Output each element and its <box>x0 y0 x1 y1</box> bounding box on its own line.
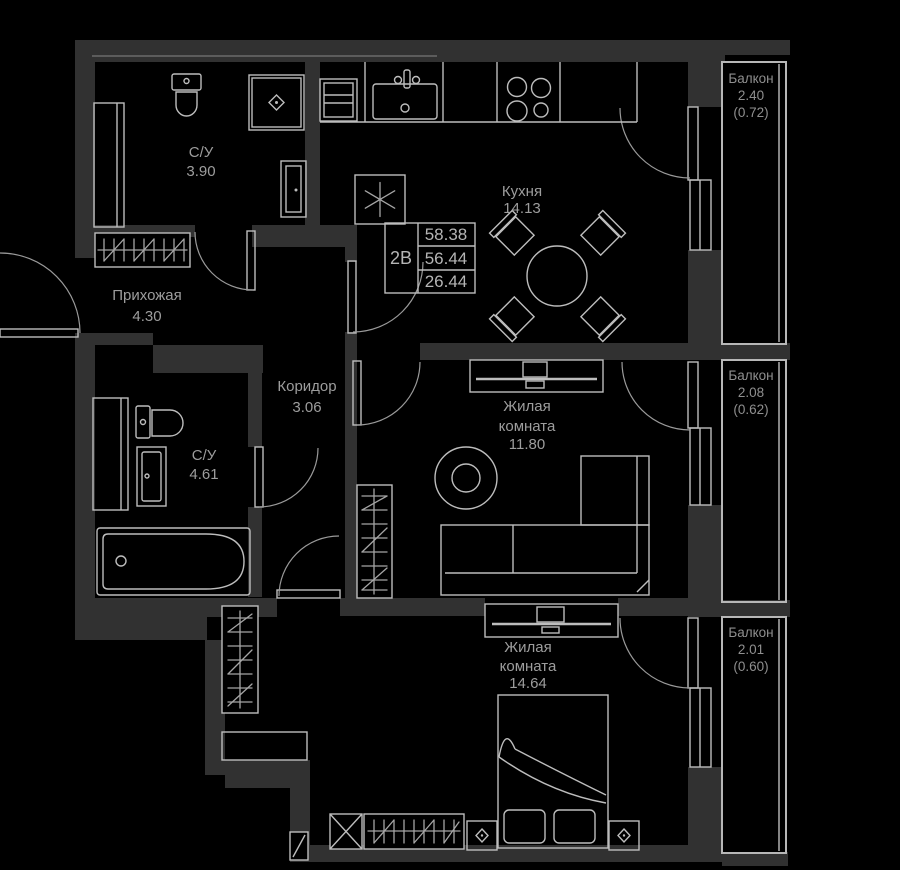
area-without-balconies-value: 56.44 <box>425 249 468 268</box>
room-area: 4.61 <box>189 466 218 483</box>
pillow-icon <box>504 810 545 843</box>
wall <box>153 345 263 373</box>
wall <box>688 250 722 343</box>
balcony-labels: Балкон 2.40 (0.72) Балкон 2.08 (0.62) Ба… <box>728 71 773 674</box>
floor-plan-drawing: 2В 58.38 56.44 26.44 <box>0 0 900 870</box>
bed-icon <box>498 695 608 848</box>
room-area: 14.64 <box>509 675 547 692</box>
wall <box>688 62 722 107</box>
kitchen-balcony-door <box>620 107 698 180</box>
wardrobe-icon <box>357 485 392 598</box>
room-name: С/У <box>189 144 214 161</box>
wall <box>688 343 790 360</box>
wall <box>340 598 485 616</box>
balcony-area: 2.40 <box>738 88 764 103</box>
kitchen-living-door <box>353 361 420 425</box>
hallway-wardrobe-icon <box>95 233 190 267</box>
wall <box>305 62 320 230</box>
room-area: 4.30 <box>132 308 161 325</box>
balcony-reduced-area: (0.60) <box>733 659 768 674</box>
room-name: комната <box>500 658 557 675</box>
balcony-area: 2.08 <box>738 385 764 400</box>
balcony-name: Балкон <box>728 625 773 640</box>
armchair-icon <box>435 447 497 509</box>
balcony-reduced-area: (0.62) <box>733 402 768 417</box>
wall <box>252 225 357 247</box>
wall <box>75 40 725 62</box>
room-name: комната <box>499 418 556 435</box>
duct-shaft-icon <box>330 814 362 849</box>
stove-icon <box>507 78 551 122</box>
entrance-door <box>0 253 80 337</box>
room-name: Жилая <box>504 639 551 656</box>
wall <box>688 505 722 600</box>
balcony-reduced-area: (0.72) <box>733 105 768 120</box>
room-area: 14.13 <box>503 200 541 217</box>
living-room-fixtures <box>357 360 649 598</box>
bathroom2-fixtures <box>93 398 250 595</box>
bathtub-icon <box>97 528 250 595</box>
wall <box>75 40 95 258</box>
bathroom-door-leaf-icon <box>281 161 306 217</box>
wall <box>345 247 357 262</box>
boiler-icon <box>355 175 405 224</box>
wall <box>420 343 722 360</box>
wardrobe-icon <box>364 814 464 849</box>
sofa-icon <box>441 456 649 595</box>
wall <box>248 373 262 447</box>
wall <box>688 767 722 845</box>
room-name: Кухня <box>502 183 542 200</box>
wall <box>75 335 95 620</box>
room-area: 3.06 <box>292 399 321 416</box>
floor-plan: 2В 58.38 56.44 26.44 <box>0 0 900 870</box>
bathroom2-door <box>255 447 318 507</box>
shaft-cabinet-icon <box>93 398 128 510</box>
bedroom-fixtures <box>222 604 639 860</box>
wardrobe-icon <box>222 606 258 713</box>
shower-icon <box>249 75 304 130</box>
total-area-value: 58.38 <box>425 225 468 244</box>
bedroom-balcony-door <box>620 618 698 688</box>
room-name: С/У <box>192 447 217 464</box>
corner-shaft-icon <box>290 832 308 860</box>
wall <box>722 852 788 866</box>
wall <box>75 333 153 345</box>
toilet-icon <box>136 406 183 438</box>
wall <box>710 40 790 55</box>
room-area: 3.90 <box>186 163 215 180</box>
wall <box>345 332 357 598</box>
niche <box>222 732 307 760</box>
room-area: 11.80 <box>509 436 545 453</box>
toilet-icon <box>172 74 201 116</box>
kitchen-sink-icon <box>373 70 437 119</box>
room-name: Прихожая <box>112 287 182 304</box>
balcony-name: Балкон <box>728 71 773 86</box>
living-balcony-door <box>622 362 698 430</box>
balconies <box>722 62 786 853</box>
walls <box>75 40 790 866</box>
bedroom-door <box>277 536 340 598</box>
wall <box>75 598 207 640</box>
living-area-value: 26.44 <box>425 272 468 291</box>
kitchen-fixtures <box>320 62 637 341</box>
dining-table-icon <box>490 211 626 342</box>
balcony-name: Балкон <box>728 368 773 383</box>
shaft-cabinet-icon <box>94 103 124 227</box>
tv-stand-icon <box>485 604 618 637</box>
balcony-area: 2.01 <box>738 642 764 657</box>
washing-machine-icon <box>320 79 357 121</box>
pillow-icon <box>554 810 595 843</box>
bathroom1-door <box>195 231 255 290</box>
tv-stand-icon <box>470 360 603 392</box>
unit-info-box: 2В 58.38 56.44 26.44 <box>385 223 475 293</box>
sink-icon <box>137 447 166 506</box>
room-name: Жилая <box>503 398 550 415</box>
room-name: Коридор <box>277 378 336 395</box>
unit-type-label: 2В <box>390 248 412 268</box>
